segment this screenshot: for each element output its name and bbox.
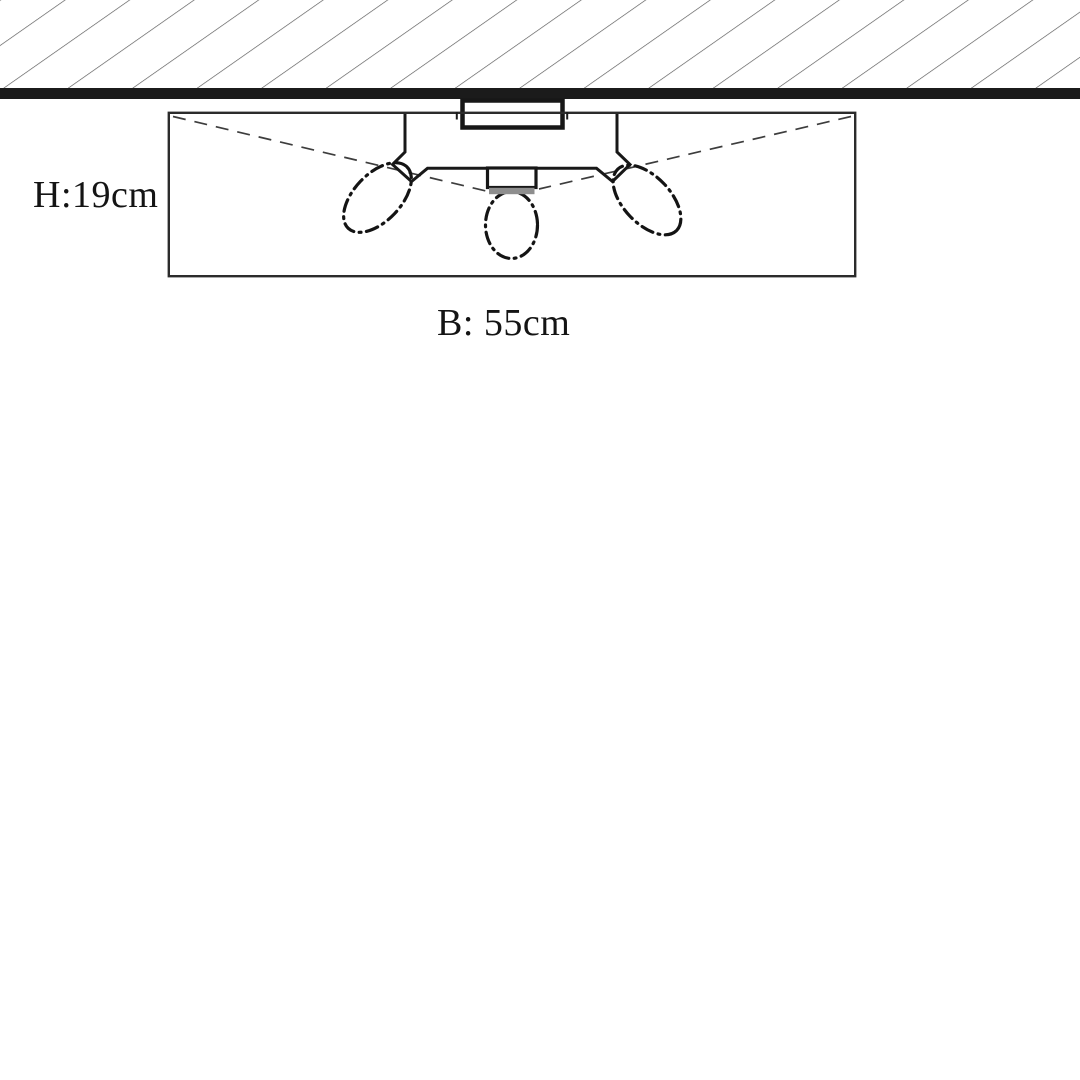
center-socket-shade xyxy=(489,188,535,194)
width-dimension-label: B: 55cm xyxy=(437,303,570,345)
lamp-dimension-diagram: H:19cm B: 55cm xyxy=(0,0,1080,1080)
center-socket xyxy=(488,168,537,188)
height-dimension-label: H:19cm xyxy=(33,175,158,217)
bulb-center xyxy=(486,192,538,259)
bulb-right xyxy=(601,153,694,247)
ceiling-hatch xyxy=(0,0,1080,88)
projection-line-right xyxy=(539,117,851,190)
dimension-bounding-box xyxy=(169,113,855,276)
ceiling-surface-line xyxy=(0,88,1080,99)
projection-line-left xyxy=(173,117,486,192)
